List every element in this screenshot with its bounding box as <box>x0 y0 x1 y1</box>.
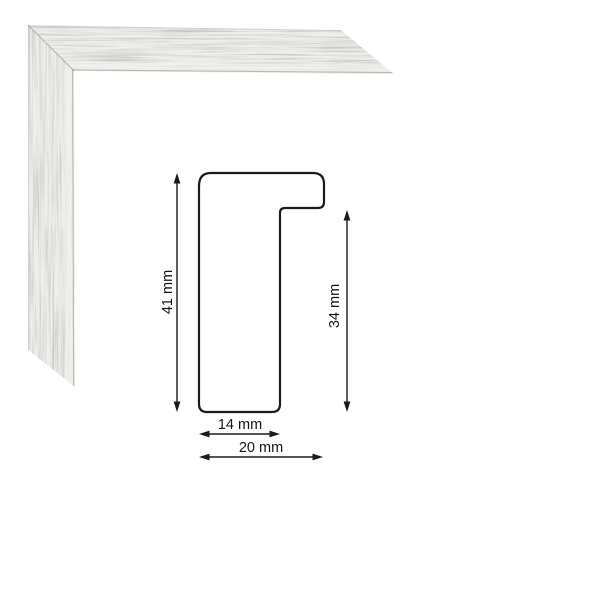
arrowhead-right-icon <box>270 431 281 438</box>
inner-width-label: 14 mm <box>218 417 262 433</box>
product-image: 41 mm 34 mm 14 mm 20 mm <box>0 0 600 600</box>
dimension-inner-height: 34 mm <box>327 210 350 412</box>
arrowhead-left-icon <box>199 431 210 438</box>
profile-diagram: 41 mm 34 mm 14 mm 20 mm <box>0 0 600 600</box>
dimension-inner-width: 14 mm <box>199 417 280 437</box>
arrowhead-up-icon <box>344 210 351 221</box>
arrowhead-right-icon <box>313 454 324 461</box>
dimension-overall-height: 41 mm <box>160 173 180 412</box>
moulding-profile-outline <box>199 173 324 412</box>
overall-height-label: 41 mm <box>160 270 176 314</box>
arrowhead-up-icon <box>174 173 181 184</box>
arrowhead-down-icon <box>174 402 181 413</box>
arrowhead-left-icon <box>199 454 210 461</box>
dimension-overall-width: 20 mm <box>199 440 323 460</box>
inner-height-label: 34 mm <box>327 284 343 328</box>
arrowhead-down-icon <box>344 402 351 413</box>
overall-width-label: 20 mm <box>239 440 283 456</box>
